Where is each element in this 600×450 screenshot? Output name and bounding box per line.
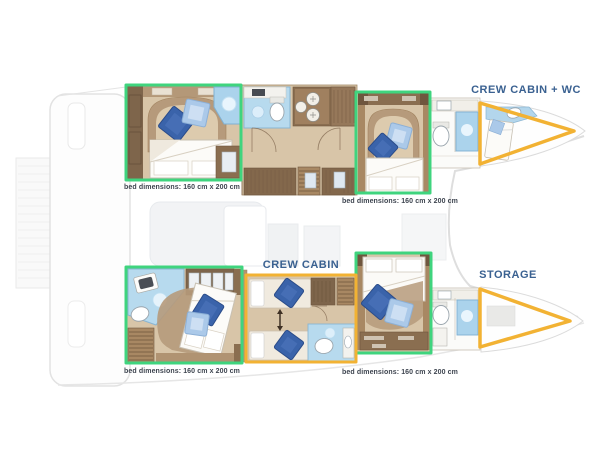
toilet [433, 126, 449, 146]
crew-cabin [247, 276, 356, 362]
pillow-light [185, 312, 210, 337]
zone-label-crew-cabin-wc: CREW CABIN + WC [471, 84, 581, 96]
double-bed [366, 158, 423, 192]
wardrobe [244, 168, 296, 195]
cabin-bottom-fore [356, 253, 431, 353]
galley [293, 87, 355, 126]
crew-bed-upper [249, 278, 311, 309]
cockpit-outline [50, 94, 130, 386]
bathroom [244, 87, 290, 128]
toilet [270, 103, 284, 121]
zone-label-crew-cabin: CREW CABIN [263, 259, 340, 271]
sink [437, 101, 451, 110]
bed-dimensions-note-4: bed dimensions: 160 cm x 200 cm [342, 369, 458, 376]
wc-bottom [431, 288, 480, 350]
cabin-top-aft [126, 85, 242, 180]
stairs [128, 328, 154, 362]
wardrobe [311, 278, 335, 305]
deck-plan-drawing [0, 0, 600, 450]
catamaran-layout-diagram: CREW CABIN + WC CREW CABIN STORAGE bed d… [0, 0, 600, 450]
cabinets [360, 332, 428, 350]
pillow-light [182, 99, 210, 127]
corridor-top [242, 85, 357, 195]
wc-top [430, 98, 480, 168]
crew-bed-lower [249, 330, 311, 361]
toilet [433, 306, 449, 325]
sink [438, 291, 451, 299]
hatch-window [305, 173, 316, 188]
bathroom [308, 324, 355, 361]
bed-dimensions-note-3: bed dimensions: 160 cm x 200 cm [124, 368, 240, 375]
cabin-top-fore [357, 92, 430, 193]
sink [345, 336, 352, 348]
bed-dimensions-note-2: bed dimensions: 160 cm x 200 cm [342, 198, 458, 205]
wardrobe [127, 86, 143, 179]
bow-storage [487, 306, 515, 326]
sink [252, 89, 265, 96]
cabin-bottom-aft [126, 267, 242, 363]
bed-dimensions-note-1: bed dimensions: 160 cm x 200 cm [124, 184, 240, 191]
hatch-window [334, 172, 345, 188]
zone-label-storage: STORAGE [479, 269, 537, 281]
